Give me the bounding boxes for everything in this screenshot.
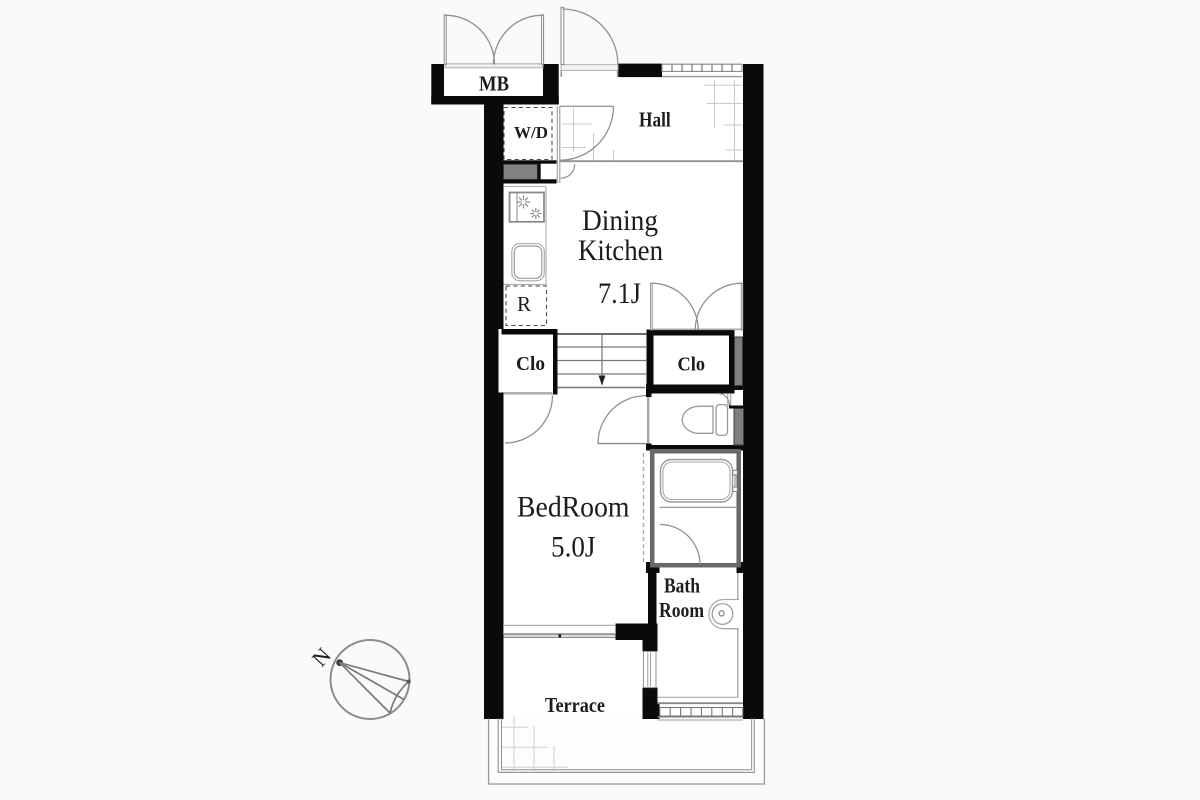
svg-text:Hall: Hall [639,108,671,132]
svg-text:R: R [517,292,531,316]
svg-text:Room: Room [659,598,704,622]
svg-text:W/D: W/D [514,123,548,142]
svg-text:Dining: Dining [582,204,658,237]
svg-text:Clo: Clo [678,354,706,376]
svg-text:Bath: Bath [664,574,700,598]
svg-text:Kitchen: Kitchen [578,234,663,267]
svg-text:Terrace: Terrace [545,693,605,717]
svg-text:MB: MB [479,71,509,95]
svg-text:5.0J: 5.0J [551,531,596,564]
svg-text:BedRoom: BedRoom [517,491,630,524]
svg-text:Clo: Clo [516,353,545,375]
svg-text:7.1J: 7.1J [598,277,641,310]
